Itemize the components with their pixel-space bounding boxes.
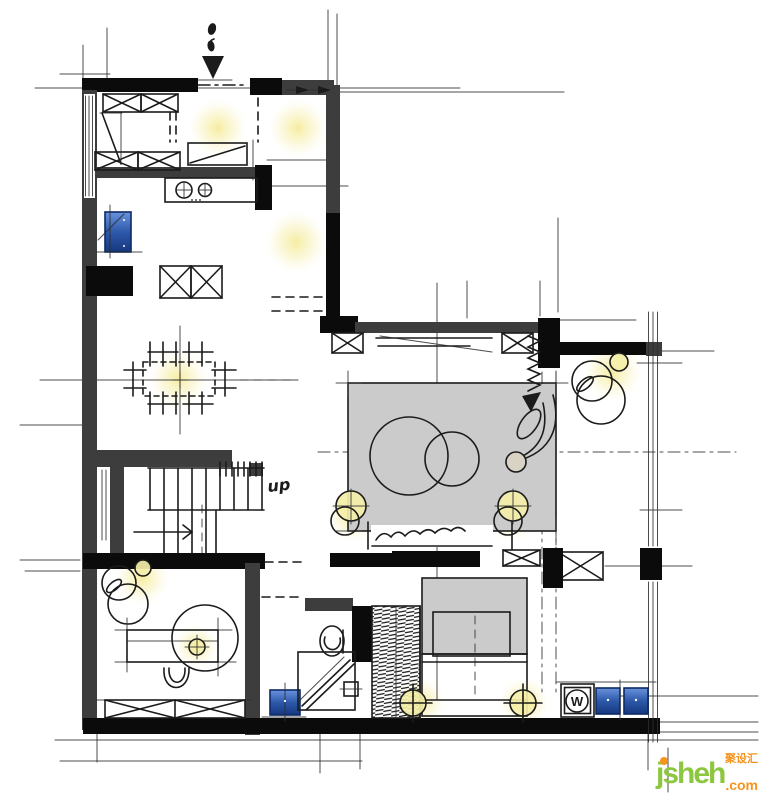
kitchen-stove [165, 178, 257, 202]
bathroom-sink [262, 683, 306, 721]
tv-console [332, 333, 533, 353]
side-table [506, 452, 526, 472]
washing-machine-label: W [571, 694, 584, 709]
right-window [649, 312, 658, 742]
kitchen-fridge [96, 205, 142, 258]
watermark-cn-text: 聚设汇 [725, 750, 758, 766]
stairs: up [134, 462, 291, 553]
watermark: jsheh 聚设汇 .com [656, 749, 758, 795]
washing-machine: W [561, 684, 594, 717]
desk-chair [164, 668, 189, 688]
entry-arrow-icon [202, 22, 224, 79]
watermark-tld: .com [725, 777, 758, 793]
bathroom-small [262, 626, 362, 721]
wall-light [610, 353, 628, 371]
study-cabinet [96, 700, 252, 718]
laundry-area: W [556, 680, 656, 720]
floor-plan-drawing: up [0, 0, 760, 797]
stairs-up-label: up [266, 475, 291, 496]
bedroom-bottom [372, 548, 603, 722]
master-bedroom [331, 333, 568, 549]
laundry-sinks [596, 680, 648, 720]
watermark-j-dot [660, 757, 668, 765]
floor-plan-canvas: up [0, 0, 760, 797]
